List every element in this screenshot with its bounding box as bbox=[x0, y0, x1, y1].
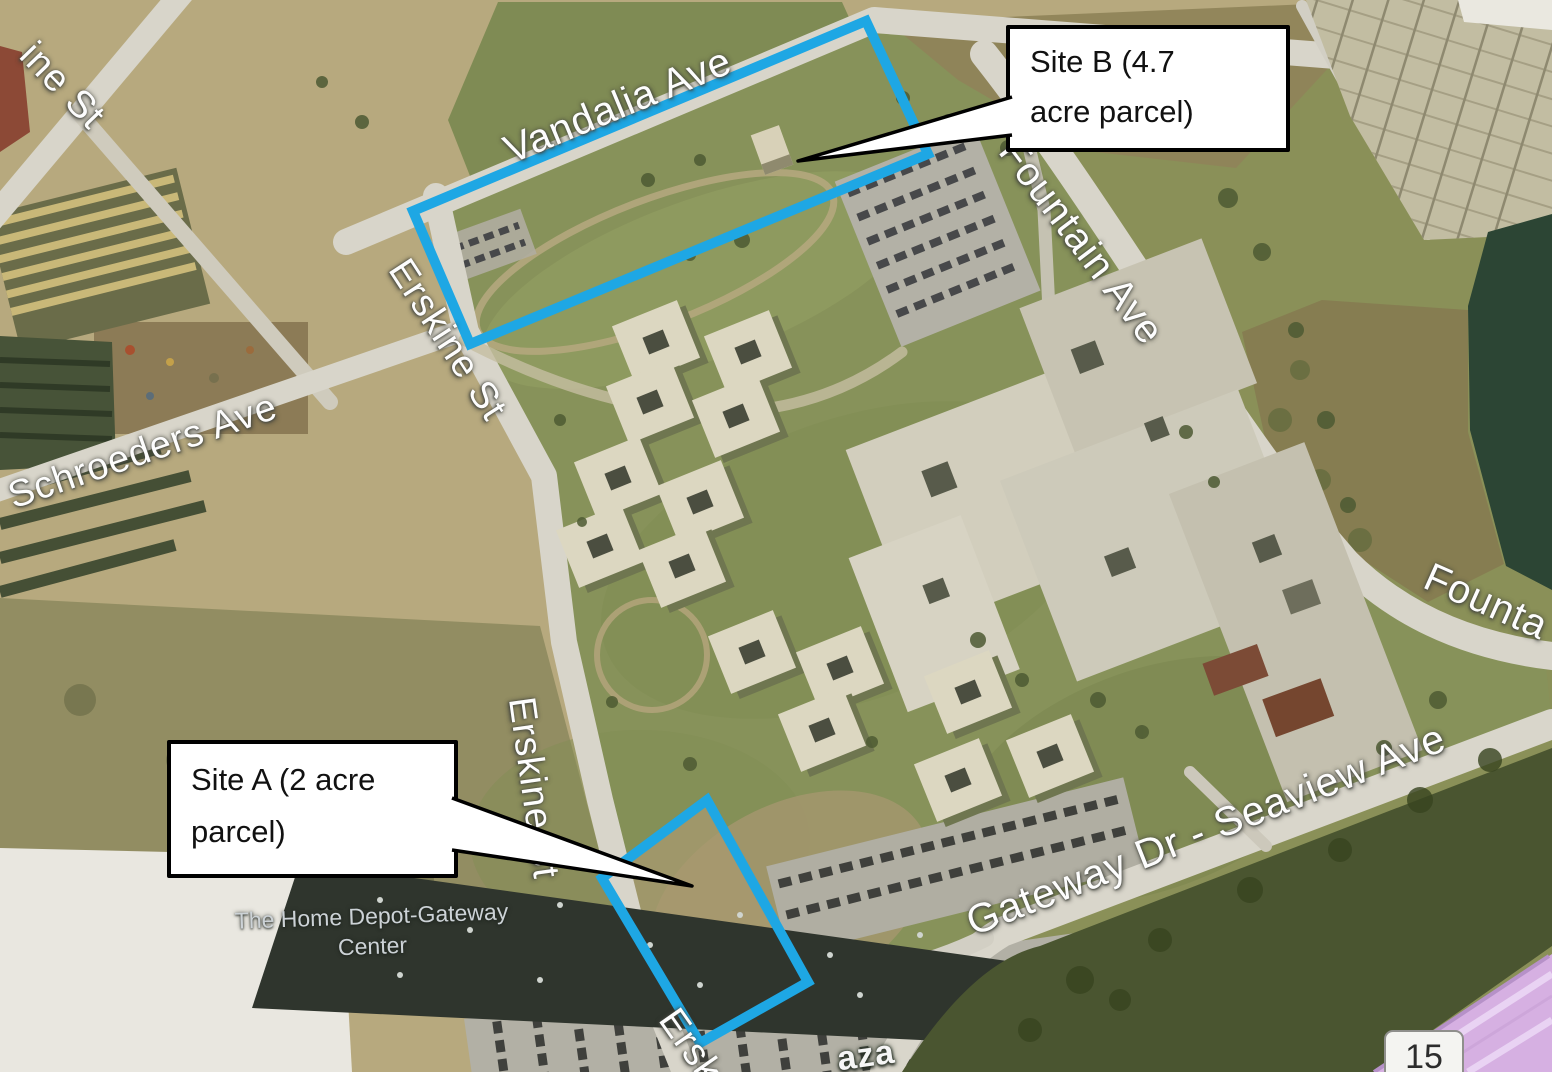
home-depot-label: The Home Depot-Gateway Center bbox=[211, 895, 533, 966]
route-shield-number: 15 bbox=[1405, 1038, 1443, 1072]
street-label-plaza-partial: aza bbox=[835, 1033, 898, 1072]
callout-site-b-line: acre parcel) bbox=[1030, 87, 1266, 137]
callout-site-a: Site A (2 acre parcel) bbox=[167, 740, 458, 878]
callout-site-b-line: Site B (4.7 bbox=[1030, 37, 1266, 87]
route-shield-15: 15 bbox=[1384, 1030, 1464, 1072]
callout-site-a-line: parcel) bbox=[191, 806, 434, 858]
aerial-map: ine St Vandalia Ave Erskine St Schroeder… bbox=[0, 0, 1552, 1072]
callout-site-a-line: Site A (2 acre bbox=[191, 754, 434, 806]
callout-site-b: Site B (4.7 acre parcel) bbox=[1006, 25, 1290, 152]
